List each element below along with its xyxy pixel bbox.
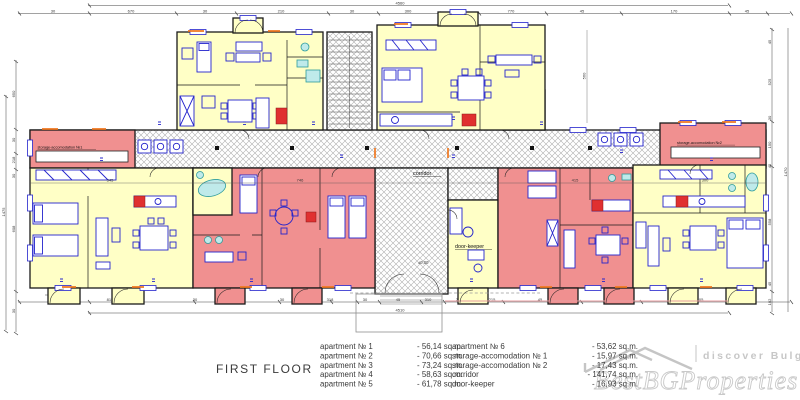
watermark-tagline: discover Bulgaria (703, 350, 800, 362)
legend-value: - 16,93 sq.m. (592, 380, 638, 389)
stove-symbol (134, 196, 145, 207)
left-dimension-chain: 1475 650 30 218 30 608 30 (1, 60, 18, 335)
legend-label: storage-accomodation № 1 (452, 351, 547, 360)
dim-label: 746 (297, 178, 304, 183)
legend-label: apartment № 1 (320, 342, 373, 351)
corridor-branch (448, 168, 498, 200)
dining-table-symbol (690, 226, 716, 250)
legend-label: apartment № 4 (320, 370, 373, 379)
dim-label: 30 (193, 297, 198, 302)
bathtub-symbol (746, 173, 758, 191)
double-bed-symbol (727, 218, 763, 268)
dim-label: 30 (280, 297, 285, 302)
floor-title: FIRST FLOOR (216, 362, 313, 376)
wardrobe-symbol (636, 222, 646, 248)
dim-label: 45 (767, 281, 772, 286)
storage-room-1: storage-accomodation №1 (30, 130, 135, 168)
dim-label: 30 (51, 8, 56, 13)
dim-label: 4560 (396, 0, 406, 5)
bed-symbol (528, 186, 556, 198)
bed-symbol (528, 171, 556, 183)
legend-label: apartment № 6 (452, 342, 505, 351)
floor-plan-page: discover Bulgaria BestBGProperties 4560 … (0, 0, 800, 400)
room-label: storage-accomodation №1 (38, 146, 83, 150)
dim-label: 45 (767, 163, 772, 168)
legend-label: corridor (452, 370, 479, 379)
sofa-symbol (496, 55, 532, 65)
dim-label: 30 (350, 8, 355, 13)
stove-symbol (676, 196, 688, 207)
sink-symbol (197, 172, 204, 179)
washer-symbol (306, 212, 316, 222)
building-plan: storage-accomodation №1 storage-accomoda… (28, 10, 769, 333)
dining-table-symbol (458, 76, 484, 100)
dim-label: 30 (11, 308, 16, 313)
dining-table-symbol (228, 100, 252, 122)
stove-symbol (592, 200, 603, 211)
room-label: storage-accomodation №2 (677, 141, 722, 145)
toilet-symbol (216, 237, 223, 244)
shelf-symbol (36, 151, 128, 162)
legend-value: - 15,97 sq.m. (592, 351, 638, 360)
wardrobe-symbol (36, 170, 116, 180)
dim-label: 30 (203, 8, 208, 13)
corridor-entrance-hall (375, 168, 448, 294)
room-area (498, 168, 633, 288)
legend-value: - 53,62 sq.m. (592, 342, 638, 351)
kitchen-counter-symbol (256, 98, 269, 128)
dim-label: 345 (107, 178, 114, 183)
stove-symbol (462, 114, 476, 126)
dim-label: 218 (11, 156, 16, 163)
legend-label: door-keeper (452, 380, 495, 389)
bed-symbol (328, 196, 345, 238)
legend-label: storage-accomodation № 2 (452, 361, 547, 370)
dim-label: 525 (767, 78, 772, 85)
sink-symbol (622, 174, 631, 180)
apartment-lower-middle-left (193, 168, 375, 288)
apartment-upper-middle (377, 12, 545, 130)
dim-label: 770 (508, 8, 515, 13)
dim-label: 210 (278, 8, 285, 13)
sofa-symbol (205, 252, 233, 262)
tv-symbol (96, 262, 110, 269)
top-dimension-chain: 4560 30 670 30 210 30 300 45 770 45 170 … (18, 0, 793, 15)
room-area (30, 168, 193, 288)
dim-label: 30 (767, 115, 772, 120)
dining-table-symbol (596, 235, 620, 255)
dim-label: 310 (425, 297, 432, 302)
kitchen-counter-symbol (380, 114, 452, 126)
toilet-symbol (609, 175, 616, 182)
dim-label: 1475 (1, 207, 6, 217)
dim-label: 170 (671, 8, 678, 13)
dim-label: 102 (767, 298, 772, 305)
dim-label: 558 (767, 218, 772, 225)
room-label: door-keeper (455, 244, 484, 250)
dim-label: 30 (11, 137, 16, 142)
dim-label: 560 (582, 72, 587, 79)
dim-label: 608 (11, 225, 16, 232)
apartment-lower-left (30, 168, 193, 288)
dim-label: 30 (363, 297, 368, 302)
legend-value: - 141,74 sq.m. (588, 370, 638, 379)
legend-value: - 17,43 sq.m. (592, 361, 638, 370)
dim-label: 300 (702, 178, 709, 183)
cupboard-symbol (236, 42, 262, 51)
bed-symbol (33, 235, 78, 256)
dim-label: 4510 (396, 308, 406, 313)
toilet-symbol (301, 43, 309, 51)
sink-symbol (729, 173, 736, 180)
sofa-symbol (96, 218, 108, 256)
sofa-symbol (236, 53, 260, 62)
kitchen-counter-symbol (663, 196, 745, 207)
bed-symbol (33, 203, 78, 224)
dim-label: 30 (11, 173, 16, 178)
bed-symbol (349, 196, 366, 238)
dim-label: 45 (396, 297, 401, 302)
corridor-label: corridor (413, 171, 431, 177)
level-mark: ±0,00 (418, 260, 429, 265)
dim-label: 650 (11, 90, 16, 97)
dim-label: 1470 (783, 167, 788, 177)
door-keeper-room: door-keeper (448, 200, 498, 288)
right-dimension-chain: 45 525 30 150 45 558 45 102 1470 (767, 28, 788, 315)
legend-label: apartment № 2 (320, 351, 373, 360)
dim-label: 150 (767, 141, 772, 148)
table-symbol (468, 250, 484, 260)
dim-label: 45 (767, 39, 772, 44)
dim-label: 300 (405, 8, 412, 13)
stove-symbol (276, 108, 287, 124)
storage-room-2: storage-accomodation №2 (660, 123, 766, 166)
shelf-symbol (671, 147, 760, 158)
legend: FIRST FLOOR apartment № 1 - 56,14 sq.m. … (216, 342, 638, 389)
dim-label: 45 (745, 8, 750, 13)
apartment-lower-right (633, 165, 766, 288)
sink-symbol (297, 60, 308, 67)
floor-plan-drawing: discover Bulgaria BestBGProperties 4560 … (0, 0, 800, 400)
shower-symbol (306, 70, 320, 82)
toilet-symbol (729, 185, 736, 192)
legend-label: apartment № 3 (320, 361, 373, 370)
dim-label: 415 (572, 178, 579, 183)
sofa-symbol (564, 230, 575, 268)
dim-label: 318 (327, 297, 334, 302)
apartment-lower-middle-right (498, 168, 633, 288)
bathroom-1 (193, 168, 232, 215)
bed-symbol (240, 175, 257, 213)
dim-label: 45 (580, 8, 585, 13)
double-bed-symbol (382, 68, 422, 102)
desk-symbol (450, 208, 462, 234)
dining-table-symbol (140, 226, 168, 250)
toilet-symbol (205, 237, 212, 244)
sofa-symbol (648, 226, 659, 266)
dim-label: 670 (128, 8, 135, 13)
legend-label: apartment № 5 (320, 380, 373, 389)
